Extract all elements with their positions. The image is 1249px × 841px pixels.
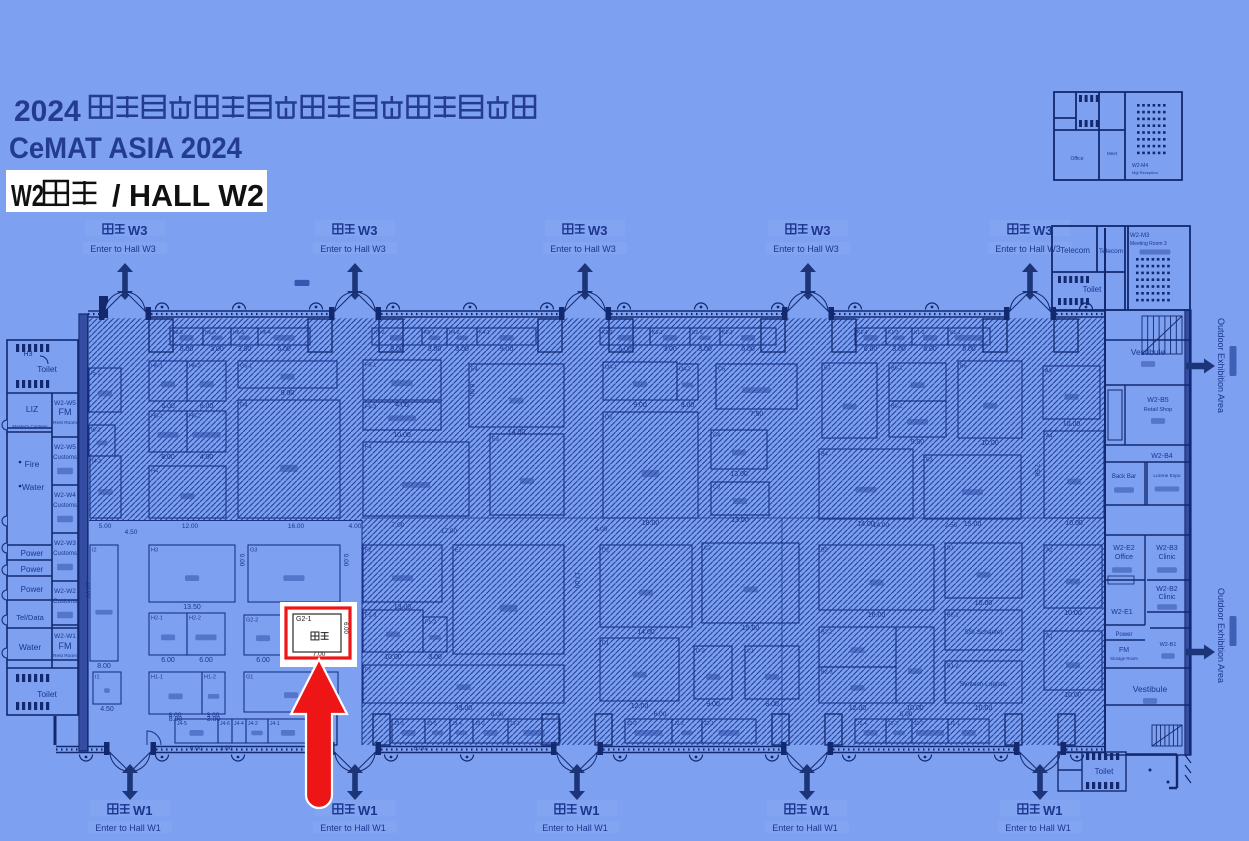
svg-text:Clinic: Clinic — [1158, 594, 1176, 601]
svg-text:G3: G3 — [250, 548, 257, 554]
svg-text:W3: W3 — [128, 223, 148, 238]
svg-text:W2-E1: W2-E1 — [1111, 609, 1133, 616]
svg-text:W1: W1 — [133, 803, 153, 818]
svg-text:33.00: 33.00 — [455, 705, 473, 712]
svg-text:10.00: 10.00 — [981, 440, 999, 447]
svg-text:W2-B5: W2-B5 — [1147, 397, 1169, 404]
svg-text:7.00: 7.00 — [392, 522, 405, 529]
svg-text:W2-M4: W2-M4 — [1132, 163, 1148, 169]
svg-text:K5-1: K5-1 — [424, 330, 435, 336]
svg-text:Clinic: Clinic — [1158, 554, 1176, 561]
svg-text:10.00: 10.00 — [1063, 421, 1081, 428]
svg-text:2.50: 2.50 — [945, 522, 958, 529]
svg-text:C1: C1 — [747, 649, 754, 655]
svg-text:Toilet: Toilet — [37, 364, 57, 374]
svg-text:/ HALL W2: / HALL W2 — [112, 178, 264, 213]
svg-text:Master's Canteen: Master's Canteen — [12, 424, 48, 429]
svg-text:Telecom: Telecom — [1099, 248, 1123, 255]
svg-text:16.00: 16.00 — [868, 612, 886, 619]
svg-text:K2-2: K2-2 — [692, 330, 703, 336]
svg-text:B7: B7 — [824, 366, 831, 372]
svg-text:F4: F4 — [365, 445, 371, 451]
svg-text:J3-1: J3-1 — [510, 721, 520, 727]
svg-text:H6-2: H6-2 — [189, 364, 201, 370]
svg-text:E3: E3 — [492, 437, 499, 443]
svg-text:W1: W1 — [810, 803, 830, 818]
svg-text:Retail Shop: Retail Shop — [1144, 407, 1172, 413]
svg-text:8.00: 8.00 — [161, 454, 175, 461]
svg-text:Customs: Customs — [53, 551, 77, 557]
svg-text:17.00: 17.00 — [573, 572, 580, 589]
svg-text:Syntech Logistic: Syntech Logistic — [960, 681, 1008, 688]
svg-text:J2-2: J2-2 — [674, 721, 684, 727]
svg-text:Power: Power — [1115, 632, 1132, 638]
svg-text:B4: B4 — [821, 452, 828, 458]
svg-text:3.00: 3.00 — [220, 745, 233, 752]
svg-text:4.50: 4.50 — [100, 706, 114, 713]
svg-text:F1: F1 — [365, 668, 371, 674]
svg-text:H6-4: H6-4 — [260, 330, 271, 336]
svg-text:6.00: 6.00 — [180, 346, 194, 353]
svg-text:6.00: 6.00 — [962, 346, 976, 353]
svg-text:D3: D3 — [605, 415, 612, 421]
svg-text:Enter to Hall W3: Enter to Hall W3 — [550, 244, 616, 254]
svg-text:I2: I2 — [92, 548, 97, 554]
svg-text:6.00: 6.00 — [654, 711, 667, 718]
svg-text:10.00: 10.00 — [393, 432, 411, 439]
svg-text:J3-3: J3-3 — [394, 721, 404, 727]
svg-text:Rest Room: Rest Room — [53, 420, 77, 426]
svg-text:H2-2: H2-2 — [189, 616, 201, 622]
svg-text:Toilet: Toilet — [1095, 767, 1114, 776]
svg-text:14.00: 14.00 — [508, 429, 526, 436]
svg-text:F5-2: F5-2 — [365, 405, 376, 411]
svg-text:E4: E4 — [471, 367, 478, 373]
svg-text:J3-2: J3-2 — [475, 721, 485, 727]
svg-text:4.00: 4.00 — [595, 526, 608, 533]
svg-text:K4-2: K4-2 — [449, 330, 460, 336]
svg-text:I4-1: I4-1 — [92, 459, 101, 465]
svg-text:3.00: 3.00 — [238, 346, 252, 353]
svg-text:6.00: 6.00 — [741, 346, 755, 353]
svg-text:CeMAT ASIA 2024: CeMAT ASIA 2024 — [9, 132, 242, 165]
svg-text:H6-6: H6-6 — [205, 330, 216, 336]
svg-text:D4-2: D4-2 — [679, 367, 691, 373]
svg-text:K5-2: K5-2 — [374, 330, 385, 336]
svg-text:H5-2: H5-2 — [189, 414, 201, 420]
svg-text:H1-1: H1-1 — [151, 675, 163, 681]
svg-text:B6-1: B6-1 — [891, 366, 903, 372]
svg-text:9.00: 9.00 — [911, 439, 925, 446]
svg-text:Telecom: Telecom — [1060, 246, 1090, 255]
svg-text:Enter to Hall W3: Enter to Hall W3 — [320, 244, 386, 254]
svg-text:C3: C3 — [713, 485, 720, 491]
svg-text:B2-1: B2-1 — [947, 613, 959, 619]
svg-text:Customs: Customs — [53, 599, 77, 605]
svg-text:3.00: 3.00 — [892, 346, 906, 353]
svg-text:17.00: 17.00 — [441, 528, 458, 535]
svg-text:FM: FM — [59, 407, 72, 417]
svg-text:Enter to Hall W1: Enter to Hall W1 — [542, 823, 608, 833]
svg-text:E2: E2 — [455, 548, 462, 554]
svg-text:Lurene Expo: Lurene Expo — [1153, 473, 1181, 479]
svg-text:10.00: 10.00 — [1065, 520, 1083, 527]
svg-text:3.00: 3.00 — [698, 346, 712, 353]
svg-text:Customs: Customs — [53, 455, 77, 461]
svg-text:W2-W3: W2-W3 — [54, 540, 76, 547]
svg-text:H5-1: H5-1 — [151, 414, 163, 420]
svg-text:Storage Room: Storage Room — [1110, 656, 1138, 661]
svg-text:9.00: 9.00 — [500, 346, 514, 353]
svg-text:W2-M3: W2-M3 — [1130, 233, 1150, 239]
svg-text:B3: B3 — [926, 458, 933, 464]
svg-text:9.00: 9.00 — [281, 390, 295, 397]
svg-text:Meet: Meet — [1107, 151, 1118, 156]
svg-text:W1: W1 — [358, 803, 378, 818]
svg-text:Toilet: Toilet — [1083, 285, 1102, 294]
svg-text:H3: H3 — [151, 548, 158, 554]
svg-text:J1-4: J1-4 — [857, 721, 867, 727]
svg-text:18.00: 18.00 — [84, 582, 91, 599]
svg-text:J2-1: J2-1 — [704, 721, 714, 727]
svg-text:4.00: 4.00 — [395, 402, 409, 409]
svg-text:Enter to Hall W1: Enter to Hall W1 — [95, 823, 161, 833]
svg-text:W1: W1 — [1043, 803, 1063, 818]
svg-text:J3-4: J3-4 — [452, 721, 462, 727]
svg-text:A1: A1 — [1046, 634, 1053, 640]
svg-text:K1-3: K1-3 — [888, 330, 899, 336]
svg-text:FM: FM — [59, 641, 72, 651]
svg-text:6.00: 6.00 — [190, 745, 203, 752]
svg-text:W3: W3 — [811, 223, 831, 238]
svg-text:H6-1: H6-1 — [151, 364, 163, 370]
svg-text:Office: Office — [1115, 554, 1133, 561]
svg-text:Outdoor Exhibition Area: Outdoor Exhibition Area — [1216, 588, 1226, 683]
svg-text:H6-3: H6-3 — [233, 330, 244, 336]
svg-text:10.00: 10.00 — [975, 705, 993, 712]
svg-text:A2: A2 — [1046, 548, 1053, 554]
svg-text:6.00: 6.00 — [277, 346, 291, 353]
svg-text:10.00: 10.00 — [975, 600, 993, 607]
svg-text:Fire: Fire — [25, 459, 40, 469]
svg-text:W2-W5: W2-W5 — [54, 444, 76, 451]
svg-text:G4: G4 — [240, 403, 247, 409]
svg-text:4.00: 4.00 — [200, 454, 214, 461]
svg-text:C5: C5 — [718, 367, 725, 373]
svg-text:13.00: 13.00 — [731, 517, 749, 524]
svg-text:B2-2: B2-2 — [821, 630, 833, 636]
svg-text:Enter to Hall W3: Enter to Hall W3 — [773, 244, 839, 254]
svg-text:W1: W1 — [580, 803, 600, 818]
svg-text:B2-3: B2-3 — [821, 670, 833, 676]
svg-text:6.00: 6.00 — [923, 346, 937, 353]
svg-text:Enter to Hall W1: Enter to Hall W1 — [320, 823, 386, 833]
svg-text:15.00: 15.00 — [964, 521, 982, 528]
svg-text:Customs: Customs — [53, 503, 77, 509]
svg-text:G2-1: G2-1 — [296, 616, 312, 623]
svg-text:Rest Room: Rest Room — [53, 653, 77, 659]
svg-text:J4-5: J4-5 — [177, 721, 187, 727]
svg-text:Back Bar: Back Bar — [1112, 474, 1136, 480]
svg-text:8.00: 8.00 — [765, 701, 779, 708]
svg-text:6.00: 6.00 — [256, 657, 270, 664]
svg-text:W2-E2: W2-E2 — [1113, 545, 1135, 552]
svg-text:Office: Office — [1071, 156, 1084, 162]
svg-text:3.00: 3.00 — [681, 402, 695, 409]
svg-text:A3: A3 — [1045, 369, 1052, 375]
svg-text:J1-2: J1-2 — [914, 721, 924, 727]
svg-text:B1-2: B1-2 — [947, 664, 959, 670]
svg-text:10.00: 10.00 — [1064, 610, 1082, 617]
svg-text:6.00: 6.00 — [200, 403, 214, 410]
svg-text:W2-W1: W2-W1 — [54, 633, 76, 640]
svg-text:4.00: 4.00 — [349, 523, 362, 530]
svg-text:Enter to Hall W1: Enter to Hall W1 — [772, 823, 838, 833]
svg-text:Water: Water — [22, 482, 45, 492]
svg-text:K4-1: K4-1 — [479, 330, 490, 336]
svg-text:F2: F2 — [365, 548, 371, 554]
svg-text:K2-1: K2-1 — [722, 330, 733, 336]
svg-text:10.00: 10.00 — [1064, 692, 1082, 699]
svg-text:K3-2: K3-2 — [602, 330, 613, 336]
svg-text:J4-2: J4-2 — [248, 721, 258, 727]
svg-text:3.00: 3.00 — [663, 346, 677, 353]
svg-text:W2-B1: W2-B1 — [1160, 642, 1177, 648]
svg-text:3.00: 3.00 — [210, 346, 224, 353]
svg-text:Power: Power — [21, 585, 44, 594]
svg-text:J1-3: J1-3 — [888, 721, 898, 727]
svg-text:3.00: 3.00 — [455, 346, 469, 353]
svg-text:D1: D1 — [602, 641, 609, 647]
svg-text:3.00: 3.00 — [207, 712, 220, 719]
svg-text:W2-B4: W2-B4 — [1151, 453, 1173, 460]
svg-text:14.00: 14.00 — [873, 522, 890, 529]
svg-text:7.50: 7.50 — [750, 411, 764, 418]
svg-text:5.00: 5.00 — [99, 523, 112, 530]
svg-text:B6-2: B6-2 — [891, 404, 903, 410]
svg-text:H2-1: H2-1 — [151, 616, 163, 622]
svg-text:Enter to Hall W3: Enter to Hall W3 — [90, 244, 156, 254]
svg-text:3.00: 3.00 — [428, 346, 442, 353]
svg-text:13.00: 13.00 — [730, 471, 748, 478]
svg-text:9.00: 9.00 — [342, 554, 349, 567]
svg-text:3.00: 3.00 — [428, 654, 442, 661]
svg-text:Outdoor Exhibition Area: Outdoor Exhibition Area — [1216, 318, 1226, 413]
svg-text:10.00: 10.00 — [384, 654, 402, 661]
svg-text:SSI Schaefer: SSI Schaefer — [964, 629, 1003, 636]
svg-text:C2: C2 — [704, 546, 711, 552]
svg-text:W3: W3 — [1033, 223, 1053, 238]
svg-text:J4-1: J4-1 — [270, 721, 280, 727]
svg-text:B5: B5 — [960, 364, 967, 370]
svg-text:6.00: 6.00 — [199, 657, 213, 664]
svg-text:I1: I1 — [95, 675, 100, 681]
svg-text:G2-2: G2-2 — [246, 618, 258, 624]
svg-text:13.50: 13.50 — [183, 604, 201, 611]
svg-text:6.00: 6.00 — [618, 346, 632, 353]
svg-text:W2-W5: W2-W5 — [54, 400, 76, 407]
svg-text:K1-2: K1-2 — [914, 330, 925, 336]
svg-text:14.00: 14.00 — [637, 629, 655, 636]
svg-text:J2-3: J2-3 — [627, 721, 637, 727]
svg-text:H3: H3 — [24, 351, 33, 358]
svg-text:15.00: 15.00 — [742, 625, 760, 632]
svg-text:Enter to Hall W1: Enter to Hall W1 — [1005, 823, 1071, 833]
svg-text:J3-5: J3-5 — [427, 721, 437, 727]
svg-text:Tel/Data: Tel/Data — [16, 613, 44, 622]
svg-text:12.00: 12.00 — [849, 705, 867, 712]
svg-text:FM: FM — [1119, 647, 1129, 654]
svg-text:18.00: 18.00 — [642, 520, 660, 527]
svg-text:2024: 2024 — [14, 95, 81, 128]
svg-text:7.50: 7.50 — [1033, 464, 1040, 477]
svg-text:Toilet: Toilet — [37, 689, 57, 699]
svg-text:9.00: 9.00 — [633, 402, 647, 409]
svg-text:LIZ: LIZ — [26, 404, 38, 414]
svg-text:G5-1: G5-1 — [240, 364, 252, 370]
svg-text:6.00: 6.00 — [900, 711, 913, 718]
svg-text:B1: B1 — [947, 546, 954, 552]
svg-text:Mgt Reception: Mgt Reception — [1132, 170, 1158, 175]
svg-text:J4-6: J4-6 — [220, 721, 230, 727]
svg-text:Power: Power — [21, 549, 44, 558]
svg-text:H4: H4 — [151, 469, 158, 475]
svg-text:W2-W4: W2-W4 — [54, 492, 76, 499]
svg-text:W2-B3: W2-B3 — [1156, 545, 1178, 552]
svg-text:I5-2: I5-2 — [91, 428, 100, 434]
svg-text:Vestibule: Vestibule — [1133, 684, 1168, 694]
svg-text:6.00: 6.00 — [342, 622, 348, 634]
svg-text:Vestibule: Vestibule — [1131, 347, 1166, 357]
svg-text:W3: W3 — [358, 223, 378, 238]
svg-text:Enter to Hall W3: Enter to Hall W3 — [995, 244, 1061, 254]
svg-text:K3-1: K3-1 — [652, 330, 663, 336]
svg-text:C4: C4 — [713, 433, 720, 439]
svg-text:9.00: 9.00 — [390, 346, 404, 353]
svg-text:D4-1: D4-1 — [605, 365, 617, 371]
svg-text:8.00: 8.00 — [169, 712, 182, 719]
svg-text:Water: Water — [19, 642, 42, 652]
svg-text:G1: G1 — [246, 675, 253, 681]
svg-text:16.00: 16.00 — [288, 523, 305, 530]
svg-text:D2: D2 — [602, 548, 609, 554]
svg-text:D-2: D-2 — [696, 649, 705, 655]
svg-text:I5-1: I5-1 — [91, 371, 100, 377]
svg-text:6.00: 6.00 — [864, 346, 878, 353]
svg-text:B2: B2 — [821, 548, 828, 554]
svg-text:9.00: 9.00 — [706, 701, 720, 708]
svg-text:4.50: 4.50 — [125, 529, 138, 536]
svg-text:6.00: 6.00 — [161, 403, 175, 410]
svg-text:12.00: 12.00 — [631, 703, 649, 710]
svg-text:W3: W3 — [588, 223, 608, 238]
svg-text:8.00: 8.00 — [491, 711, 504, 718]
svg-text:J1-1: J1-1 — [950, 721, 960, 727]
svg-text:F1-3: F1-3 — [365, 613, 376, 619]
svg-text:9.00: 9.00 — [238, 554, 245, 567]
svg-text:W2: W2 — [11, 178, 44, 213]
svg-text:J4-4: J4-4 — [234, 721, 244, 727]
svg-text:F1-2: F1-2 — [425, 620, 436, 626]
svg-text:W2-B2: W2-B2 — [1156, 586, 1178, 593]
svg-text:A4: A4 — [1046, 434, 1053, 440]
svg-text:F5-1: F5-1 — [365, 363, 376, 369]
svg-text:6.00: 6.00 — [414, 745, 427, 752]
svg-text:8.00: 8.00 — [97, 663, 111, 670]
svg-text:Power: Power — [21, 565, 44, 574]
svg-text:8.00: 8.00 — [468, 384, 475, 397]
svg-text:Meeting Room 3: Meeting Room 3 — [1130, 241, 1167, 247]
svg-text:6.00: 6.00 — [161, 657, 175, 664]
svg-text:12.00: 12.00 — [182, 523, 199, 530]
svg-text:W2-W2: W2-W2 — [54, 588, 76, 595]
svg-text:H1-2: H1-2 — [204, 675, 216, 681]
